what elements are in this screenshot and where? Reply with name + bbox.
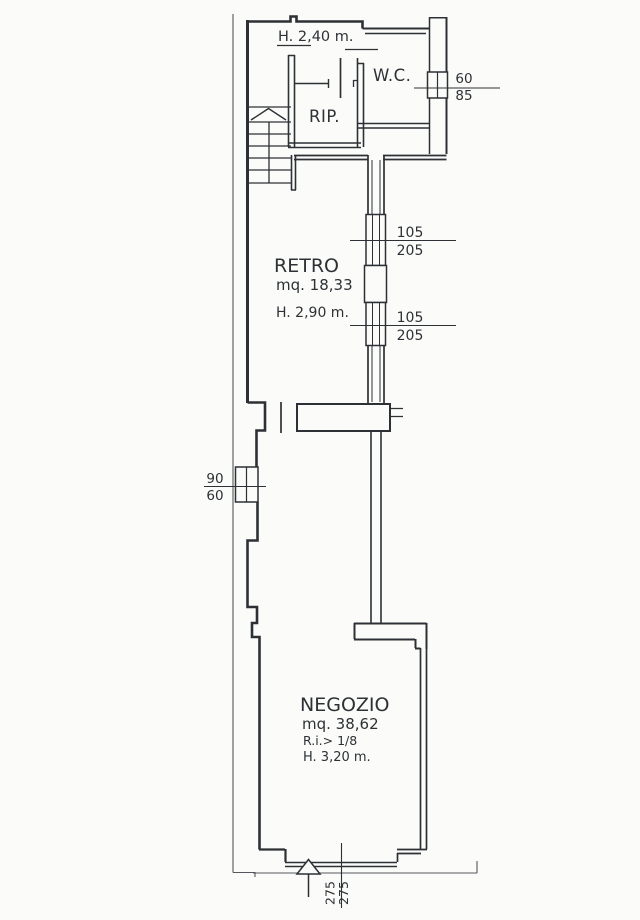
rip-left-wall (288, 55, 295, 147)
side-window-dim-under: 60 (206, 488, 223, 504)
negozio-upper-right-wall (371, 431, 381, 623)
retro-wall-segment-b (368, 345, 384, 404)
wc-bottom-wall (358, 124, 430, 129)
rip-right-wall (357, 58, 364, 147)
side-window-dim-over: 90 (206, 471, 223, 487)
rip-bottom-wall (288, 143, 361, 148)
partition-left-pier (248, 403, 266, 468)
rip-room-label: RIP. (309, 107, 340, 126)
stair-enclosure-wall (291, 155, 296, 190)
retro-window-1-dim-under: 205 (397, 243, 424, 259)
stair-up-arrow (251, 109, 286, 121)
entrance-dim-second: 275 (336, 881, 351, 905)
rip-closet-partition (294, 79, 329, 88)
floor-plan-page: H. 2,40 m. W.C. RIP. RETRO mq. 18,33 H. … (0, 0, 640, 920)
negozio-widening-wall (354, 623, 427, 649)
retro-height-label: H. 2,90 m. (276, 305, 349, 321)
entrance-right-pier (397, 850, 427, 863)
wc-room-walls (358, 124, 430, 129)
upper-height-underline (277, 46, 378, 50)
retro-wall-segment-a (368, 155, 384, 215)
upper-block-bottom-wall-right (383, 156, 447, 160)
floor-plan-canvas: H. 2,40 m. W.C. RIP. RETRO mq. 18,33 H. … (0, 0, 640, 920)
retro-room-label: RETRO (274, 255, 339, 277)
wc-window-dim-over: 60 (455, 71, 472, 87)
boundary-step (233, 873, 255, 878)
entrance-left-pier (259, 849, 286, 862)
negozio-height-label: H. 3,20 m. (303, 750, 371, 765)
negozio-walls (248, 431, 428, 867)
upper-block-bottom-wall-left (294, 156, 368, 160)
upper-block-walls (246, 17, 447, 404)
negozio-reaeration-label: R.i.> 1/8 (303, 733, 357, 748)
retro-wall-segment-b-inner (372, 346, 380, 402)
negozio-area-label: mq. 38,62 (302, 715, 379, 733)
negozio-lower-right-wall (421, 648, 427, 849)
partition-wall (297, 404, 390, 431)
retro-wall-segment-a-inner (372, 160, 380, 214)
retro-window-2-dim-over: 105 (397, 310, 424, 326)
wc-room-label: W.C. (373, 66, 411, 85)
negozio-room-label: NEGOZIO (300, 694, 389, 716)
upper-height-label: H. 2,40 m. (278, 29, 354, 45)
top-outer-wall (246, 17, 363, 29)
partition-end-ticks (390, 409, 403, 417)
negozio-left-wall (248, 502, 260, 850)
rip-room-walls (288, 55, 364, 148)
retro-window-2-dim-under: 205 (397, 328, 424, 344)
wall-pilaster (365, 266, 387, 303)
retro-window-1-dim-over: 105 (397, 225, 424, 241)
retro-area-label: mq. 18,33 (276, 276, 353, 294)
retro-window-2 (366, 303, 386, 346)
wc-window-dim-under: 85 (455, 88, 472, 104)
